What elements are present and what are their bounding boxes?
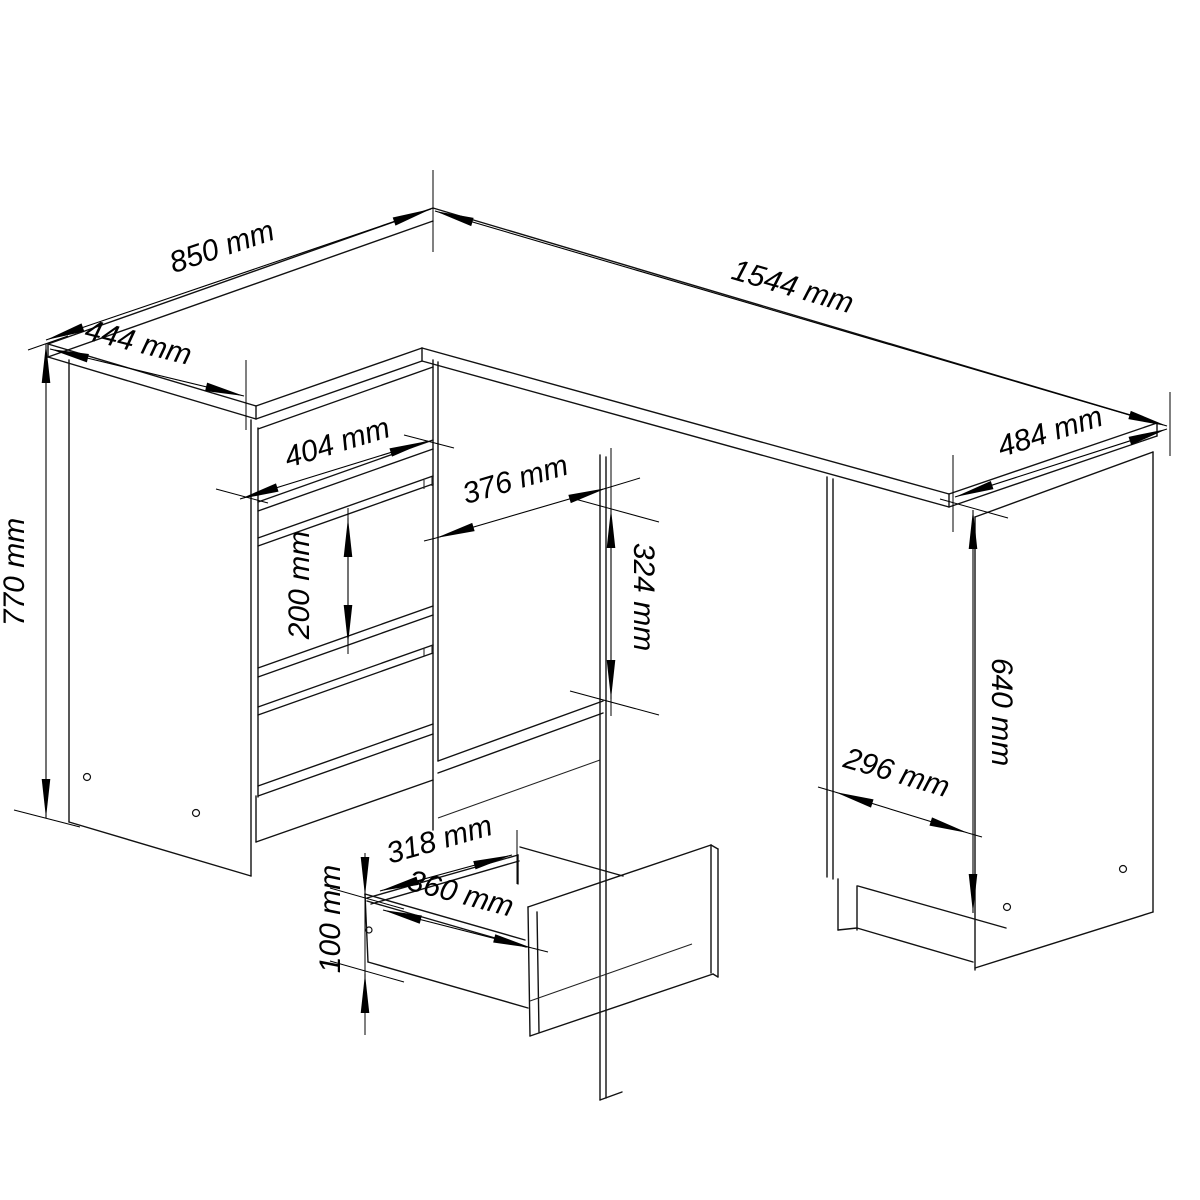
dim-label-niche-width: 376 mm (459, 449, 572, 511)
dim-label-drawer-depth: 360 mm (404, 864, 517, 923)
dim-label-right-cabinet-width: 296 mm (839, 741, 953, 804)
dim-label-width-total: 1544 mm (728, 253, 857, 320)
dim-label-width-left: 444 mm (82, 314, 195, 372)
desk-technical-drawing: 850 mm 444 mm 1544 mm 484 mm 770 mm 404 … (0, 0, 1200, 1200)
dim-label-drawer-front-height: 200 mm (283, 531, 316, 640)
dim-label-right-side-height: 640 mm (985, 658, 1018, 766)
dim-label-height-left: 770 mm (0, 518, 31, 626)
dim-label-drawer-inner-width: 318 mm (383, 809, 496, 870)
dim-label-niche-height: 324 mm (627, 543, 660, 651)
dim-label-depth-right: 484 mm (994, 400, 1107, 464)
dimension-labels: 850 mm 444 mm 1544 mm 484 mm 770 mm 404 … (0, 214, 1107, 973)
dim-label-depth-left: 850 mm (165, 214, 278, 280)
dimension-annotations (14, 170, 1170, 1035)
dim-label-drawer-front-width: 404 mm (281, 411, 394, 474)
desk-technical-drawing-page: 850 mm 444 mm 1544 mm 484 mm 770 mm 404 … (0, 0, 1200, 1200)
dim-label-drawer-side-height: 100 mm (314, 865, 347, 973)
